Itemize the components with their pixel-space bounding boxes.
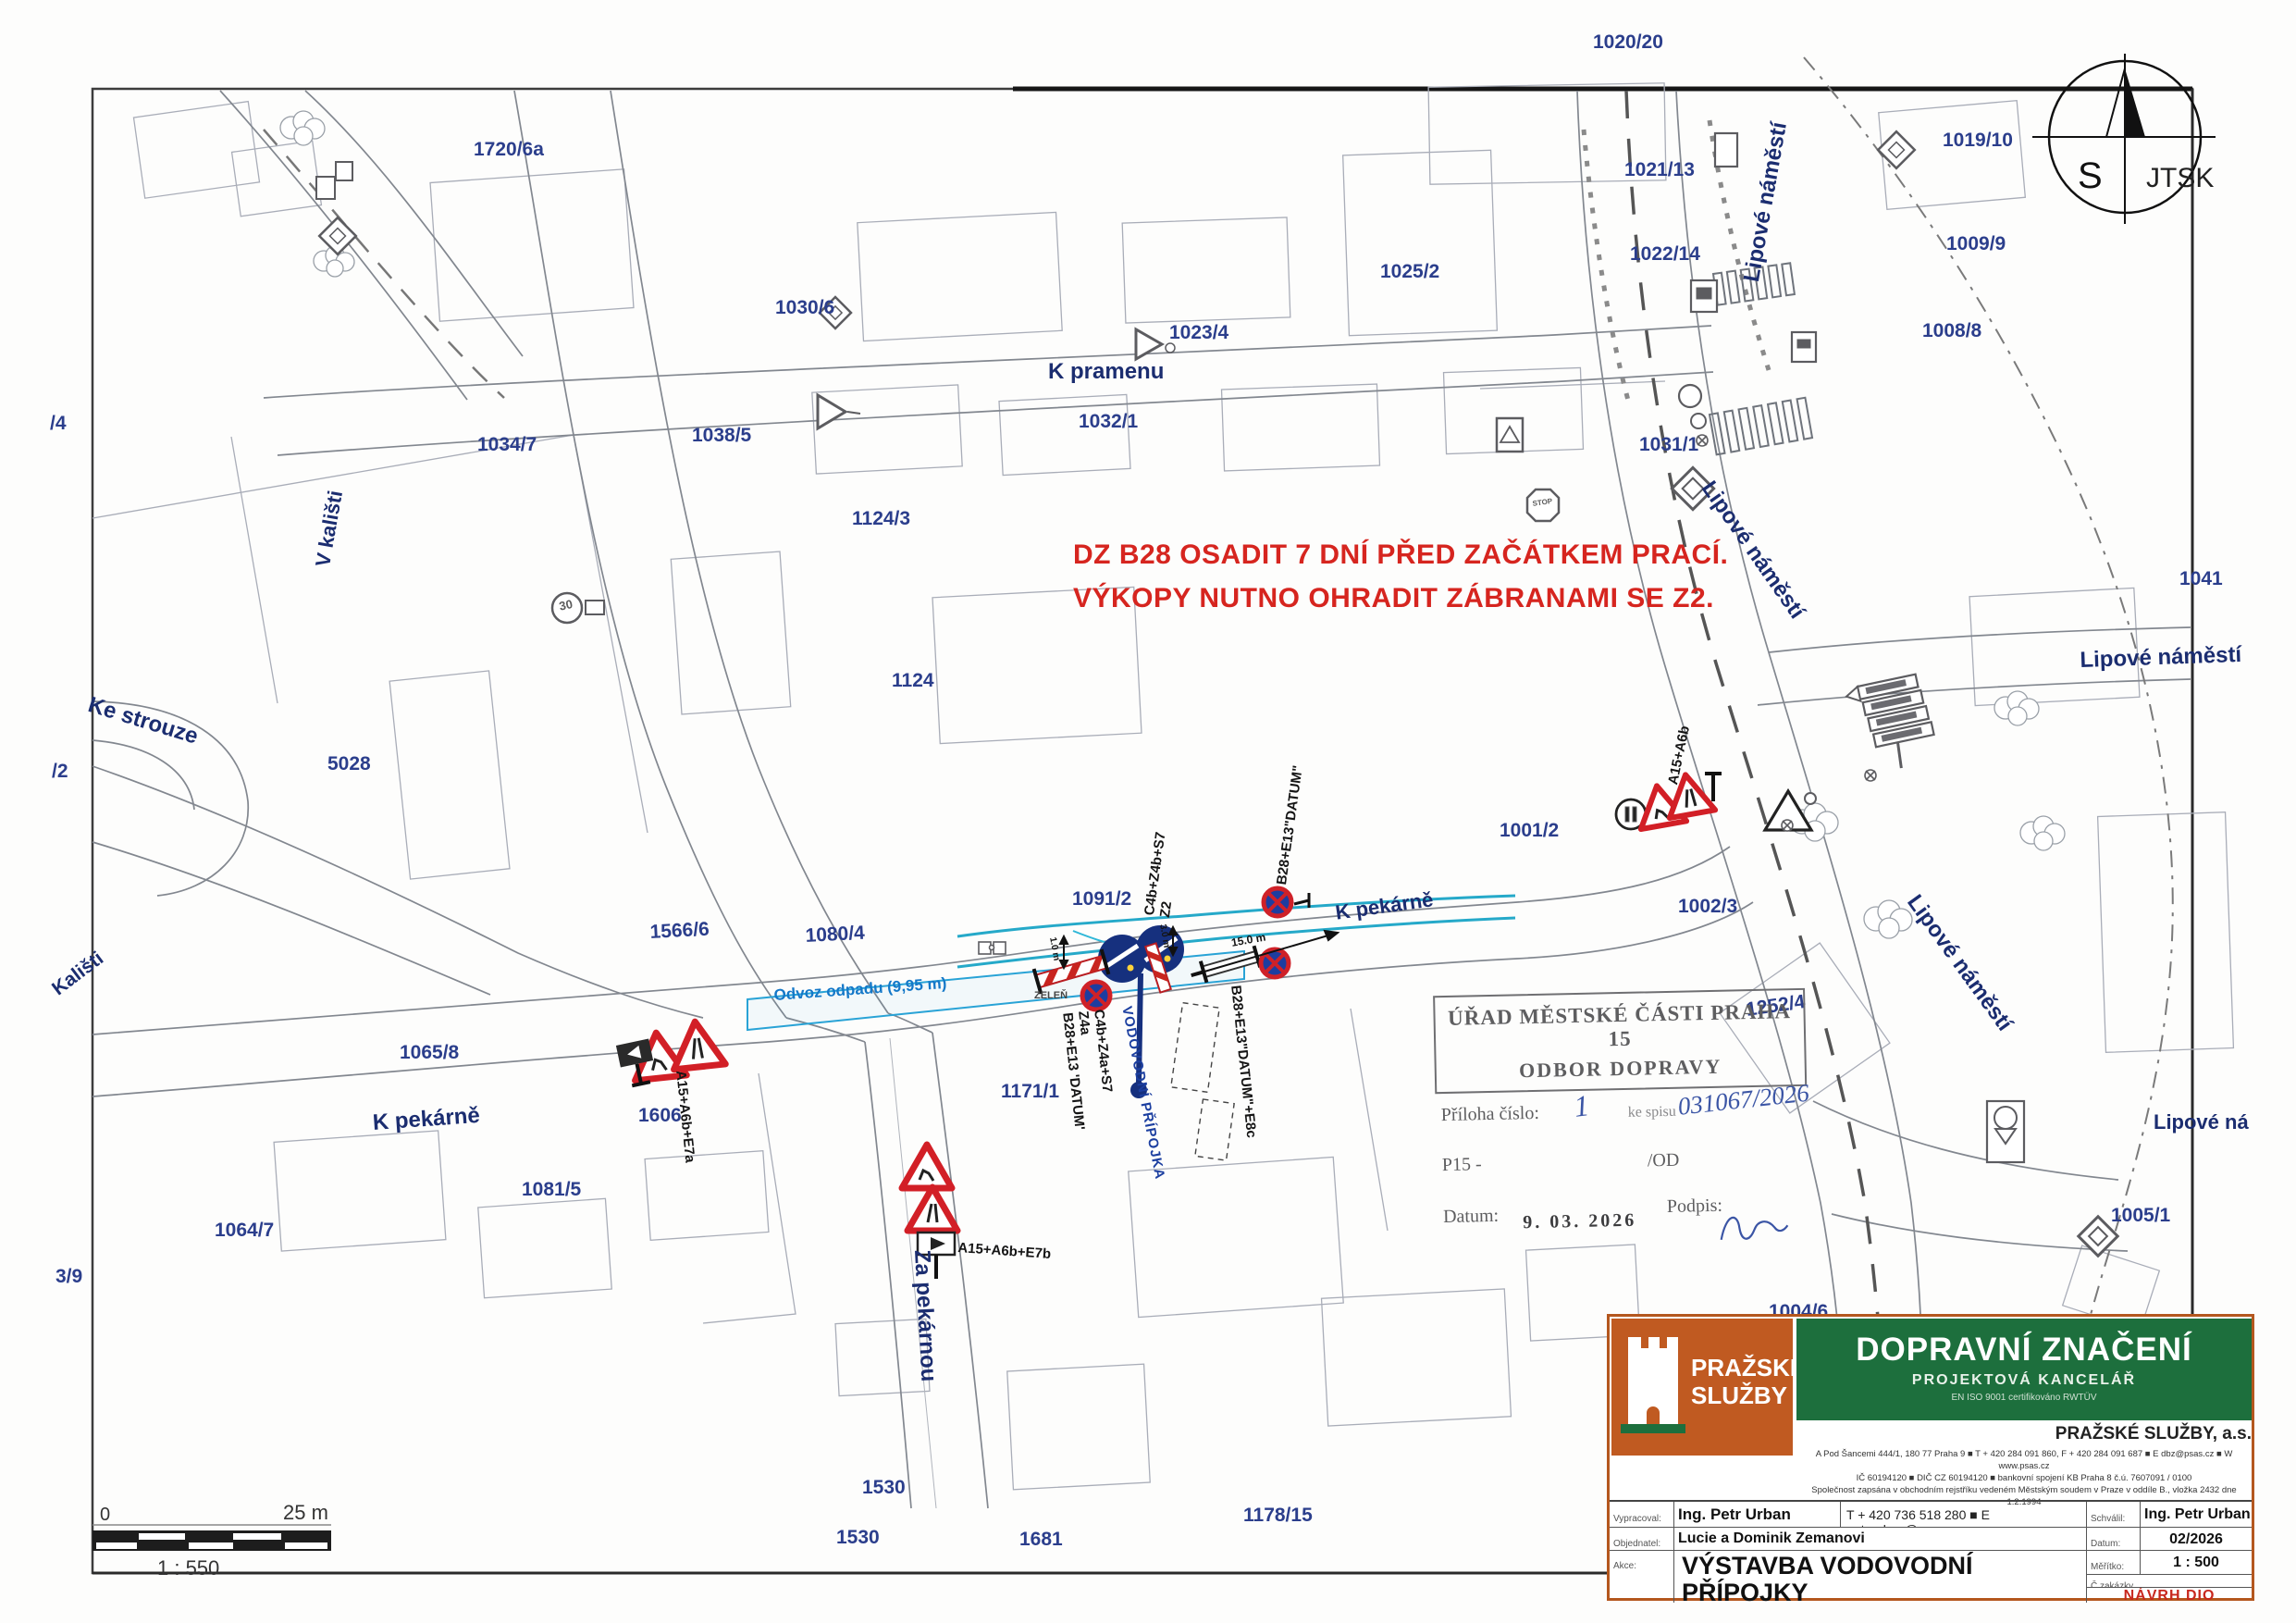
parcel-lines [93, 83, 2233, 1490]
north-s-label: S [2078, 155, 2103, 197]
stamp-od-label: /OD [1648, 1150, 1680, 1172]
banner-subtitle: PROJEKTOVÁ KANCELÁŘ [1796, 1372, 2252, 1389]
akce-label: Akce: [1613, 1561, 1636, 1571]
dashed-lines [264, 57, 2173, 1508]
parcel-label: 1032/1 [1079, 411, 1138, 433]
datum-label: Datum: [2091, 1539, 2120, 1549]
parcel-label: 1065/8 [400, 1042, 459, 1064]
signpost-icon [1845, 673, 1939, 775]
datum-value: 02/2026 [2169, 1531, 2223, 1547]
north-jtsk-label: JTSK [2146, 163, 2214, 194]
vypracoval-label: Vypracoval: [1613, 1514, 1661, 1524]
company-address-line: A Pod Šancemi 444/1, 180 77 Praha 9 ■ T … [1796, 1448, 2252, 1472]
stamp-p15-label: P15 - [1442, 1154, 1482, 1176]
objednatel-label: Objednatel: [1613, 1539, 1660, 1549]
a15-warning-triangle-icon [902, 1145, 952, 1188]
vypracoval-value: Ing. Petr Urban [1678, 1505, 1791, 1523]
navrh-dio-label: NÁVRH DIO [2124, 1588, 2216, 1603]
greenery-label: ZELEŇ [1034, 990, 1068, 1001]
speed-30-text: 30 [558, 597, 574, 613]
priority-road-sign-icon [319, 217, 356, 254]
north-arrow-icon [2032, 54, 2216, 224]
meritko-label: Měřítko: [2091, 1562, 2124, 1572]
parcel-label: 1023/4 [1169, 322, 1228, 344]
company-banner: DOPRAVNÍ ZNAČENÍ PROJEKTOVÁ KANCELÁŘ EN … [1796, 1319, 2252, 1420]
parcel-label: 1022/14 [1630, 243, 1700, 266]
banner-title: DOPRAVNÍ ZNAČENÍ [1796, 1332, 2252, 1369]
street-lipove-cut: Lipové ná [2154, 1110, 2249, 1134]
brand-line1: PRAŽSKÉ [1691, 1354, 1806, 1381]
parcel-label: 1091/2 [1072, 888, 1131, 911]
parcel-label: 1606 [638, 1105, 682, 1127]
company-name: PRAŽSKÉ SLUŽBY, a.s. [1796, 1424, 2252, 1444]
parcel-label: 1178/15 [1243, 1505, 1313, 1527]
scale-ratio-label: 1 : 550 [157, 1556, 219, 1580]
parcel-label: 1021/13 [1624, 159, 1695, 181]
crossing-sign-icon [1497, 418, 1523, 452]
parcel-label: 1030/6 [775, 297, 834, 319]
stamp-header: ÚŘAD MĚSTSKÉ ČÁSTI PRAHA 15 ODBOR DOPRAV… [1433, 988, 1807, 1094]
parcel-label: 1064/7 [215, 1220, 274, 1242]
road-lines [93, 91, 2191, 1508]
authority-stamp: ÚŘAD MĚSTSKÉ ČÁSTI PRAHA 15 ODBOR DOPRAV… [1433, 988, 1810, 1257]
parcel-label: 5028 [327, 753, 371, 775]
parcel-label: 1041 [2179, 568, 2223, 590]
stamp-department: ODBOR DOPRAVY [1442, 1053, 1799, 1084]
scale-bar-icon [93, 1525, 331, 1551]
stamp-office: ÚŘAD MĚSTSKÉ ČÁSTI PRAHA 15 [1440, 999, 1798, 1055]
work-note-line1: DZ B28 OSADIT 7 DNÍ PŘED ZAČÁTKEM PRACÍ. [1073, 533, 1728, 576]
parcel-label: 1025/2 [1380, 261, 1439, 283]
work-note-line2: VÝKOPY NUTNO OHRADIT ZÁBRANAMI SE Z2. [1073, 576, 1728, 620]
company-logo: PRAŽSKÉ SLUŽBY [1611, 1319, 1793, 1456]
stamp-priloha-value: 1 [1572, 1088, 1591, 1124]
objednatel-value: Lucie a Dominik Zemanovi [1678, 1530, 1865, 1546]
brand-line2: SLUŽBY [1691, 1381, 1806, 1409]
parcel-label: 1530 [862, 1477, 906, 1499]
parcel-label: 1566/6 [649, 919, 710, 944]
stamp-date-value: 9. 03. 2026 [1523, 1210, 1636, 1234]
parcel-label: 1034/7 [477, 434, 537, 456]
parcel-label: 3/9 [56, 1266, 82, 1288]
parcel-label: 1019/10 [1943, 130, 2013, 152]
street-k-pramenu: K pramenu [1048, 359, 1164, 385]
sign-group-icon [1987, 1101, 2024, 1162]
castle-logo-icon [1621, 1332, 1685, 1441]
a6b-warning-triangle-icon [907, 1187, 957, 1231]
title-block-grid: Vypracoval: Ing. Petr Urban T + 420 736 … [1610, 1500, 2252, 1603]
a6b-warning-triangle-icon [669, 1019, 725, 1070]
parcel-label: 1008/8 [1922, 320, 1981, 342]
b28-no-stopping-icon [1082, 982, 1110, 1010]
banner-iso: EN ISO 9001 certifikováno RWTÜV [1796, 1393, 2252, 1403]
parcel-label: /2 [52, 761, 68, 783]
stamp-spis-label: ke spisu [1628, 1104, 1676, 1121]
company-reg-line1: IČ 60194120 ■ DIČ CZ 60194120 ■ bankovní… [1796, 1472, 2252, 1484]
parcel-label: 1031/1 [1639, 434, 1698, 456]
parcel-label: 1001/2 [1500, 820, 1559, 842]
parcel-label: 1080/4 [805, 923, 865, 948]
parcel-label: 1171/1 [1001, 1081, 1059, 1103]
parcel-label: 1720/6a [474, 139, 544, 161]
parcel-label: 1124 [892, 670, 934, 692]
schvalil-label: Schválil: [2091, 1514, 2125, 1524]
akce-value-line1: VÝSTAVBA VODOVODNÍ PŘÍPOJKY [1682, 1553, 2086, 1603]
parcel-label: 1124/3 [852, 508, 910, 530]
contact-value: T + 420 736 518 280 ■ E petr.urban@psas.… [1846, 1507, 1990, 1528]
b28-no-stopping-icon [1264, 888, 1309, 916]
parcel-label: 1081/5 [522, 1179, 581, 1201]
work-note: DZ B28 OSADIT 7 DNÍ PŘED ZAČÁTKEM PRACÍ.… [1073, 533, 1728, 620]
scale-zero-label: 0 [100, 1505, 110, 1526]
parcel-label: 1009/9 [1946, 233, 2006, 255]
zakazka-label: Č.zakázky [2091, 1581, 2133, 1588]
bus-stop-sign-icon [1792, 332, 1816, 362]
parcel-label: 1020/20 [1593, 31, 1663, 54]
existing-signs [316, 131, 2117, 1256]
schvalil-value: Ing. Petr Urban [2144, 1506, 2251, 1522]
signature-icon [1715, 1205, 1790, 1251]
parcel-label: 1002/3 [1678, 896, 1737, 918]
parcel-label: /4 [50, 413, 67, 435]
plan-sheet: DZ B28 OSADIT 7 DNÍ PŘED ZAČÁTKEM PRACÍ.… [0, 0, 2296, 1623]
scale-max-label: 25 m [283, 1501, 328, 1525]
parcel-label: 1681 [1019, 1529, 1063, 1551]
yield-sign-icon [818, 395, 860, 428]
parcel-label: 1005/1 [2111, 1205, 2170, 1227]
parcel-label: 1530 [836, 1527, 880, 1549]
meritko-value: 1 : 500 [2173, 1555, 2219, 1570]
parcel-label: 1038/5 [692, 425, 751, 447]
title-block: PRAŽSKÉ SLUŽBY DOPRAVNÍ ZNAČENÍ PROJEKTO… [1607, 1314, 2254, 1601]
stamp-priloha-label: Příloha číslo: [1441, 1103, 1540, 1126]
stamp-datum-label: Datum: [1443, 1206, 1499, 1228]
